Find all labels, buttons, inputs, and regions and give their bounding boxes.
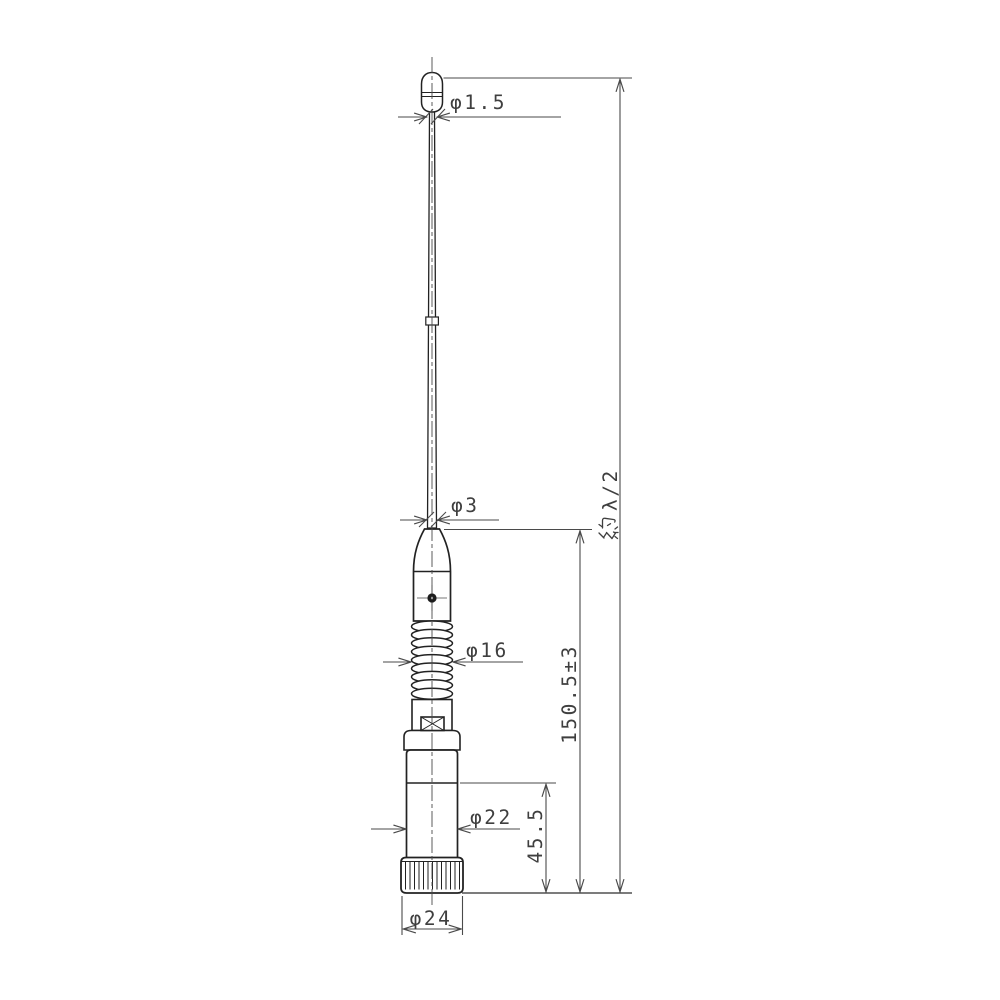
set-screw-box	[421, 717, 444, 731]
base-diameter-label: φ24	[410, 907, 453, 930]
lower-section-height-label: 45.5	[524, 807, 547, 864]
kanji-yaku-glyph	[599, 518, 618, 538]
overall-length-label: λ/2	[599, 468, 622, 538]
whip-diameter-label: φ3	[451, 494, 479, 517]
drawing-canvas: φ1.5 φ3 φ16 φ22 φ24 45.5 150.5±3 λ/2	[0, 0, 1000, 1000]
overall-length-value: λ/2	[599, 468, 622, 511]
antenna-dimension-drawing: φ1.5 φ3 φ16 φ22 φ24 45.5 150.5±3 λ/2	[0, 0, 1000, 1000]
tip-diameter-label: φ1.5	[450, 91, 507, 114]
coil-diameter-label: φ16	[466, 639, 509, 662]
dim-whip-diameter	[400, 512, 499, 527]
body-diameter-label: φ22	[470, 806, 513, 829]
assembly-height-label: 150.5±3	[558, 644, 581, 744]
